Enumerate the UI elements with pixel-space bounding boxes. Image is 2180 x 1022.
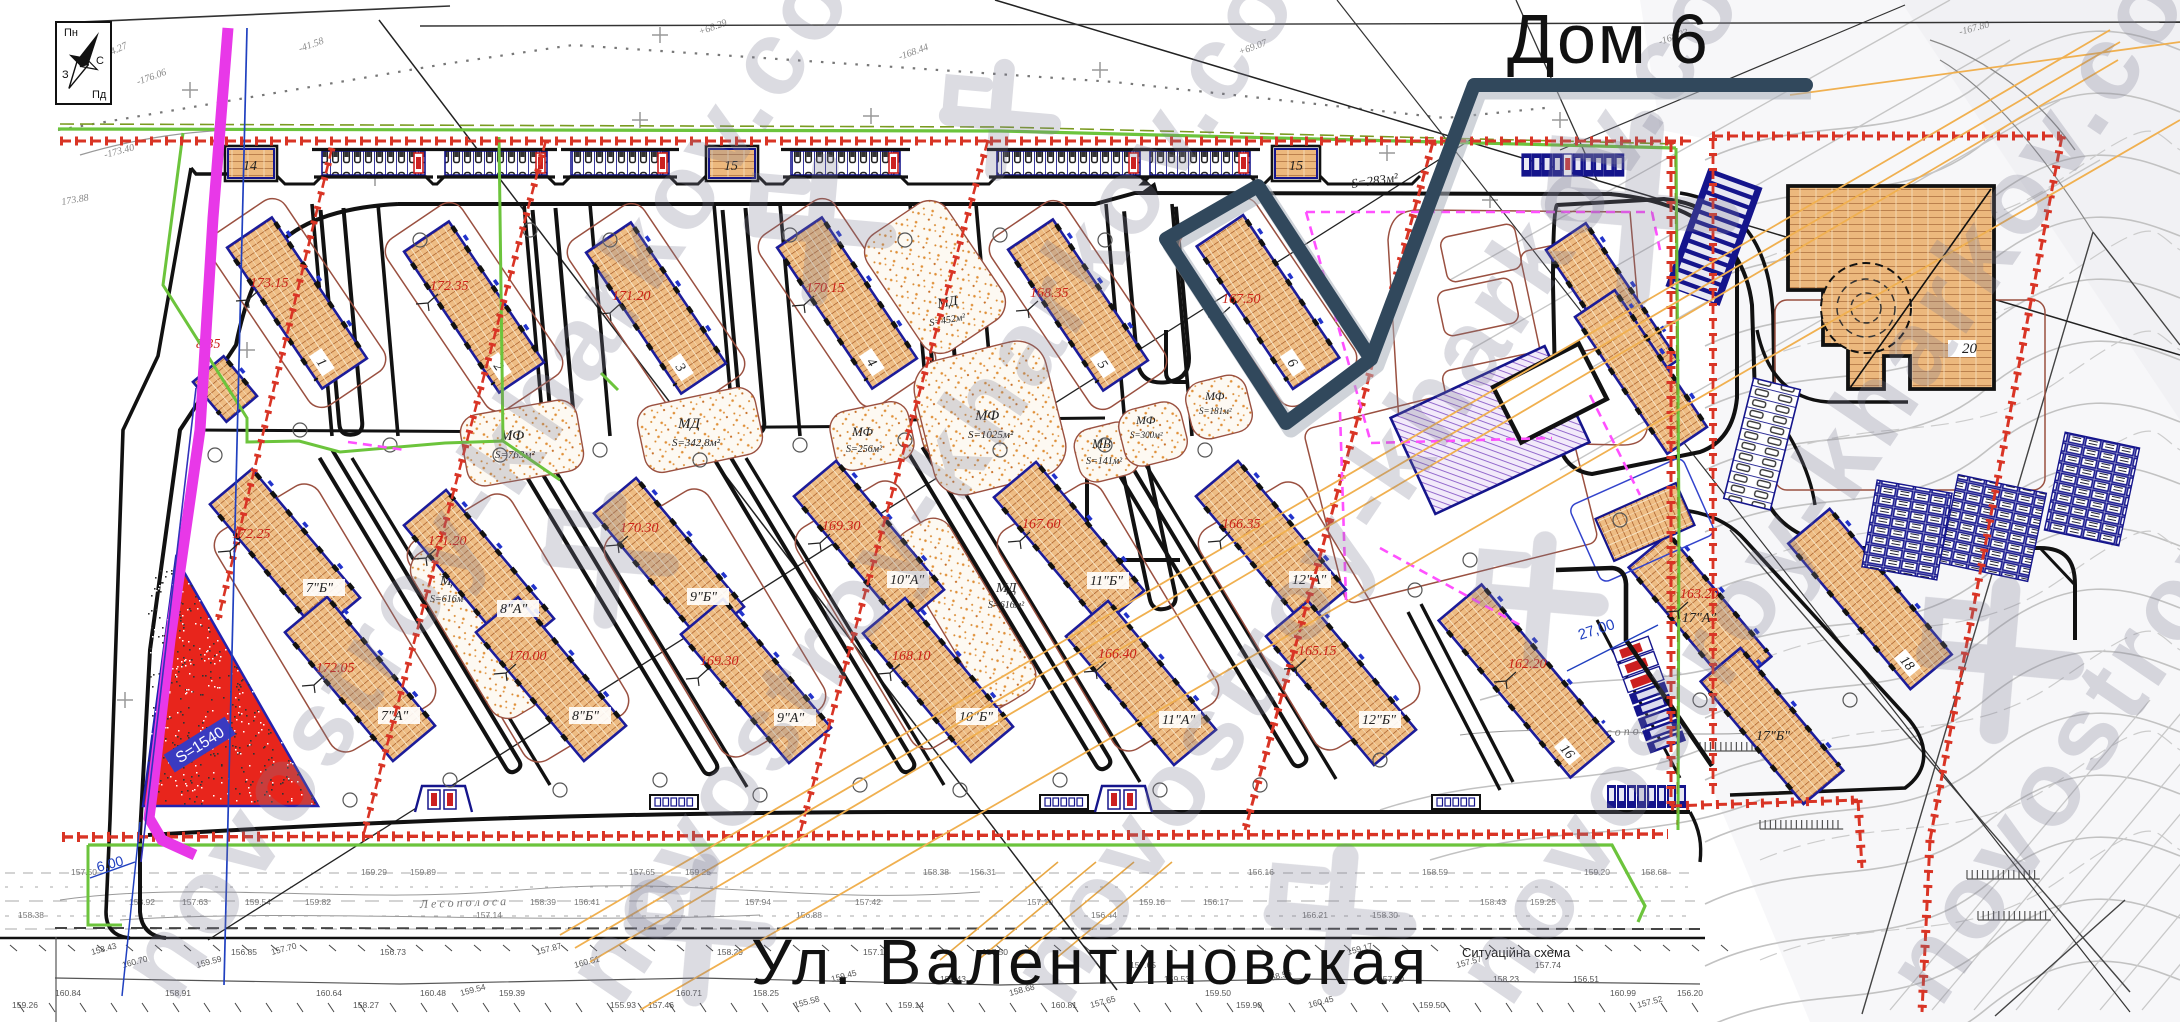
svg-text:МД: МД [995, 581, 1018, 596]
svg-text:S=342,8м²: S=342,8м² [672, 437, 721, 449]
svg-text:168.10: 168.10 [892, 649, 931, 664]
svg-text:158.38: 158.38 [923, 867, 949, 877]
svg-text:156.17: 156.17 [1203, 897, 1229, 907]
svg-text:МФ: МФ [1135, 413, 1156, 427]
svg-text:159.82: 159.82 [305, 897, 331, 907]
svg-text:9"Б": 9"Б" [690, 590, 717, 605]
svg-text:166.40: 166.40 [1098, 647, 1137, 662]
svg-text:166.35: 166.35 [1222, 517, 1261, 532]
svg-text:160.48: 160.48 [420, 988, 446, 998]
svg-text:167.60: 167.60 [1022, 517, 1061, 532]
svg-text:S=141м²: S=141м² [1086, 456, 1123, 467]
svg-text:170.00: 170.00 [508, 649, 547, 664]
svg-text:МФ: МФ [1204, 389, 1225, 403]
svg-text:157.94: 157.94 [745, 897, 771, 907]
svg-text:157.42: 157.42 [855, 897, 881, 907]
svg-text:158.38: 158.38 [18, 910, 44, 920]
svg-text:Дом 6: Дом 6 [1507, 0, 1710, 78]
svg-text:12"Б": 12"Б" [1362, 713, 1396, 728]
svg-text:169.30: 169.30 [700, 654, 739, 669]
svg-text:15: 15 [1289, 159, 1303, 174]
svg-text:156.20: 156.20 [1677, 988, 1703, 998]
svg-text:156.16: 156.16 [1248, 867, 1274, 877]
svg-text:Ул. Валентиновская: Ул. Валентиновская [751, 926, 1431, 998]
svg-text:S=181м²: S=181м² [1199, 406, 1232, 416]
svg-text:158.39: 158.39 [530, 897, 556, 907]
svg-text:S=616м²: S=616м² [988, 600, 1025, 611]
svg-text:Пн: Пн [64, 27, 78, 39]
svg-text:7"Б": 7"Б" [306, 581, 333, 596]
svg-text:159.89: 159.89 [410, 867, 436, 877]
svg-text:159.29: 159.29 [361, 867, 387, 877]
svg-text:160.84: 160.84 [55, 988, 81, 998]
svg-text:11"Б": 11"Б" [1090, 574, 1123, 589]
svg-text:158.27: 158.27 [353, 1000, 379, 1010]
svg-text:17"Б": 17"Б" [1756, 729, 1790, 744]
svg-text:159.50: 159.50 [1419, 1000, 1445, 1010]
svg-text:159.90: 159.90 [1236, 1000, 1262, 1010]
svg-text:14: 14 [243, 159, 257, 174]
svg-text:МФ: МФ [851, 424, 874, 439]
svg-text:167.50: 167.50 [1222, 292, 1261, 307]
svg-text:С: С [96, 55, 104, 67]
svg-text:8"Б": 8"Б" [572, 709, 599, 724]
svg-text:157.14: 157.14 [476, 910, 502, 920]
svg-text:S=300м²: S=300м² [1130, 430, 1163, 440]
svg-text:Пд: Пд [92, 89, 107, 101]
svg-text:158.59: 158.59 [1422, 867, 1448, 877]
svg-text:МД: МД [677, 416, 701, 432]
svg-text:160.64: 160.64 [316, 988, 342, 998]
svg-text:156.31: 156.31 [970, 867, 996, 877]
svg-text:156.73: 156.73 [380, 947, 406, 957]
svg-text:170.30: 170.30 [620, 521, 659, 536]
svg-text:159.26: 159.26 [12, 1000, 38, 1010]
svg-text:173.15: 173.15 [250, 276, 289, 291]
svg-text:157.50: 157.50 [71, 867, 97, 877]
svg-text:S=256м²: S=256м² [846, 444, 883, 455]
svg-text:160.99: 160.99 [1610, 988, 1636, 998]
svg-text:158.68: 158.68 [1641, 867, 1667, 877]
svg-text:172.25: 172.25 [232, 527, 271, 542]
svg-text:8"А": 8"А" [500, 602, 527, 617]
svg-text:З: З [62, 69, 69, 81]
svg-text:172.35: 172.35 [430, 279, 469, 294]
svg-text:159.39: 159.39 [499, 988, 525, 998]
